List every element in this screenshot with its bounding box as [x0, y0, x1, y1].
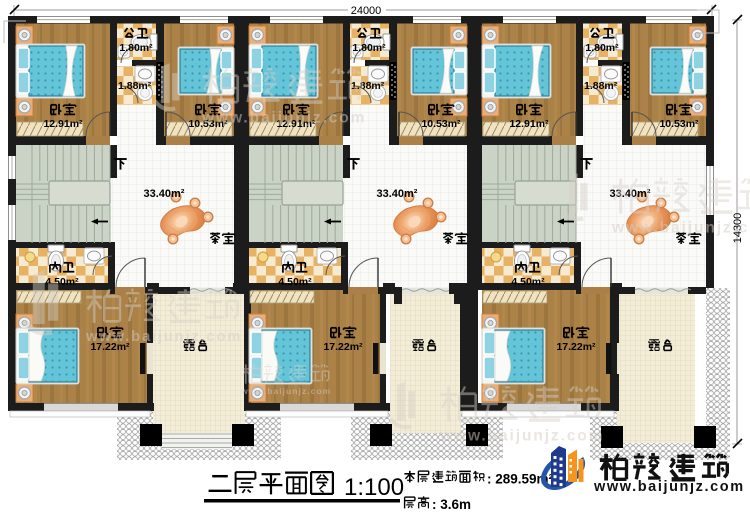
svg-text:www.baijunjz.com: www.baijunjz.com — [593, 479, 745, 495]
svg-text:4.50m²: 4.50m² — [511, 276, 545, 288]
svg-text:4.50m²: 4.50m² — [278, 276, 312, 288]
svg-text:: 3.6m: : 3.6m — [432, 497, 471, 511]
svg-text:1.80m²: 1.80m² — [352, 42, 386, 54]
svg-text:1.88m²: 1.88m² — [584, 80, 618, 92]
svg-text:17.22m²: 17.22m² — [556, 341, 596, 353]
svg-text:1.88m²: 1.88m² — [118, 80, 152, 92]
svg-text:12.91m²: 12.91m² — [43, 118, 83, 130]
svg-text:1:100: 1:100 — [344, 474, 404, 501]
svg-text:24000: 24000 — [351, 5, 382, 17]
svg-text:33.40m²: 33.40m² — [377, 188, 418, 200]
svg-text:www.baijunjz.com: www.baijunjz.com — [240, 386, 331, 396]
svg-text:10.53m²: 10.53m² — [421, 118, 461, 130]
svg-text:10.53m²: 10.53m² — [659, 118, 699, 130]
svg-text:17.22m²: 17.22m² — [323, 341, 363, 353]
svg-text:www.baijunjz.com: www.baijunjz.com — [201, 110, 366, 127]
svg-text:www.baijunjz.com: www.baijunjz.com — [611, 220, 750, 237]
svg-text:www.baijunjz.com: www.baijunjz.com — [85, 329, 242, 345]
svg-text:33.40m²: 33.40m² — [144, 188, 185, 200]
svg-text:www.baijunjz.com: www.baijunjz.com — [439, 428, 604, 445]
svg-text:1.80m²: 1.80m² — [119, 42, 153, 54]
svg-text:12.91m²: 12.91m² — [509, 118, 549, 130]
svg-text:1.80m²: 1.80m² — [585, 42, 619, 54]
